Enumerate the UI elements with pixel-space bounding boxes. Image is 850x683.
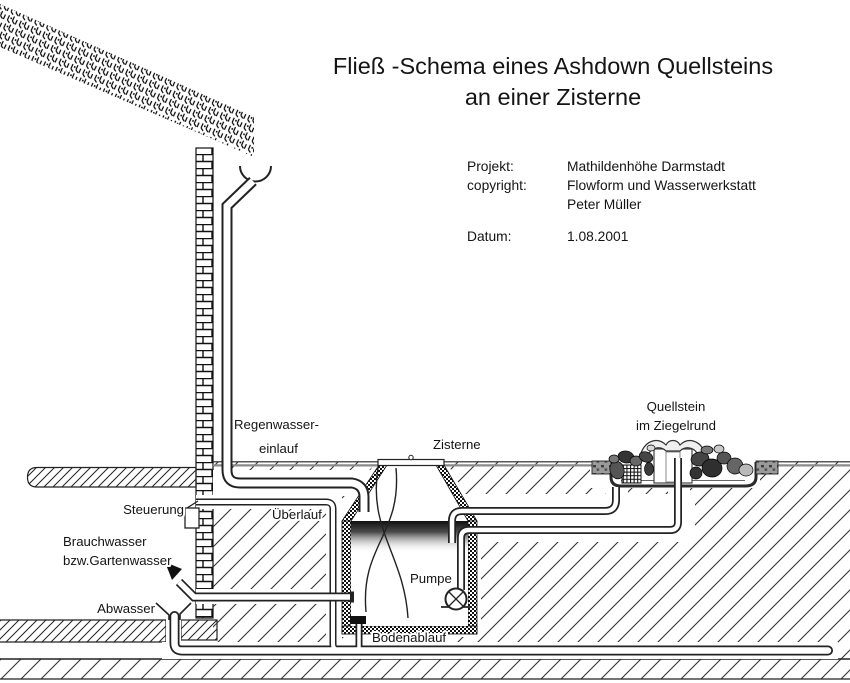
diagram-canvas: Fließ -Schema eines Ashdown Quellsteins … [0, 0, 850, 683]
lid-knob [409, 455, 413, 459]
page-title-line1: Fließ -Schema eines Ashdown Quellsteins [333, 53, 773, 79]
label-brauchwasser-line1: Brauchwasser [63, 534, 147, 549]
floor-drain-fitting [350, 616, 366, 624]
label-regenwasser-line1: Regenwasser- [234, 417, 319, 432]
brick-ring-left [592, 461, 611, 474]
label-pumpe: Pumpe [410, 571, 452, 586]
page-title-line2: an einer Zisterne [465, 84, 641, 110]
filter-basket [622, 465, 641, 483]
interior-floor-strip [28, 468, 197, 488]
label-zisterne: Zisterne [433, 437, 481, 452]
copyright-value1: Flowform und Wasserwerkstatt [567, 178, 756, 193]
datum-label: Datum: [467, 229, 511, 244]
label-steuerung: Steuerung [123, 502, 184, 517]
brick-ring-right [756, 461, 778, 474]
datum-value: 1.08.2001 [567, 229, 628, 244]
cistern-lid [378, 460, 444, 466]
diagram-page: Fließ -Schema eines Ashdown Quellsteins … [0, 0, 850, 683]
label-regenwasser-line2: einlauf [259, 441, 298, 456]
copyright-value2: Peter Müller [567, 197, 642, 212]
label-ueberlauf: Überlauf [272, 507, 322, 522]
label-quellstein-line1: Quellstein [647, 399, 706, 414]
copyright-label: copyright: [467, 178, 527, 193]
projekt-label: Projekt: [467, 159, 514, 174]
label-quellstein-line2: im Ziegelrund [636, 418, 716, 433]
label-bodenablauf: Bodenablauf [372, 630, 446, 645]
basement-floor-strip [0, 620, 166, 642]
bottom-soil-band [0, 659, 850, 679]
label-abwasser: Abwasser [97, 601, 156, 616]
label-brauchwasser-line2: bzw.Gartenwasser [63, 553, 172, 568]
wall-foundation [181, 620, 217, 640]
projekt-value: Mathildenhöhe Darmstadt [567, 159, 725, 174]
